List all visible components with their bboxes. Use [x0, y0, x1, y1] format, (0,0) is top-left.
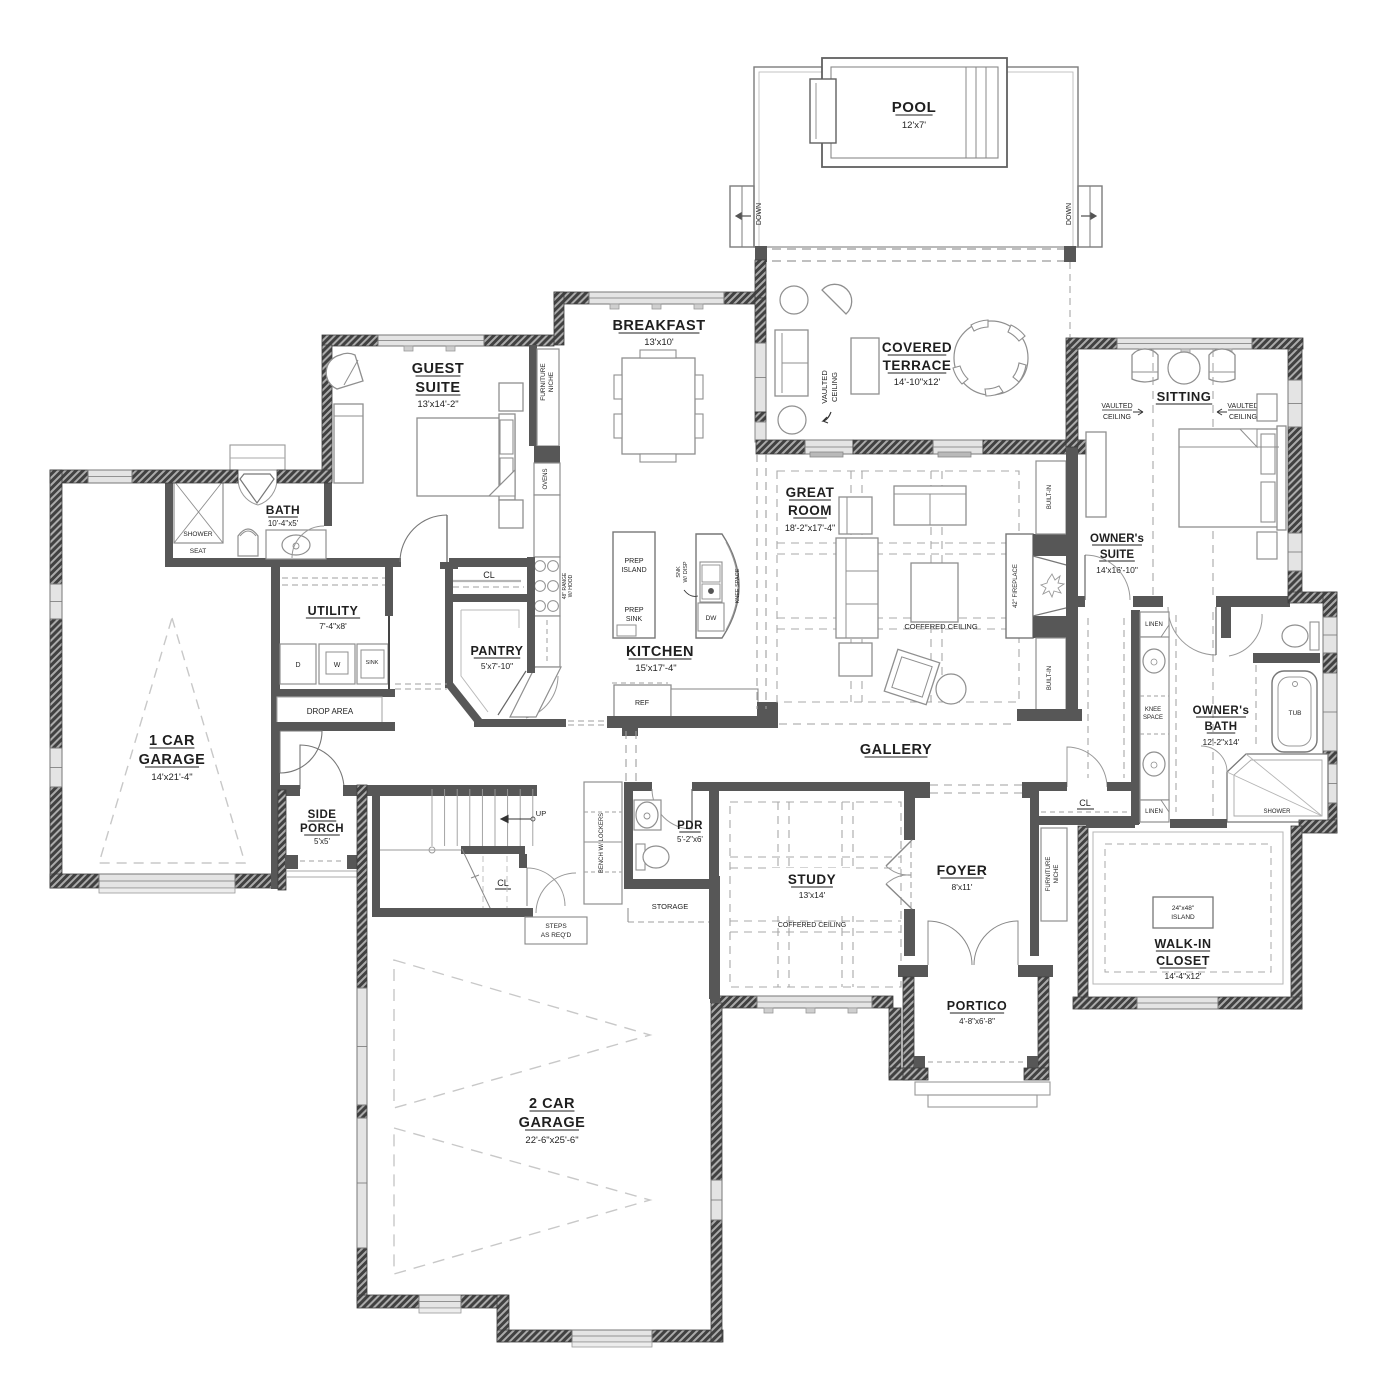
svg-text:NICHE: NICHE — [548, 371, 555, 392]
svg-text:SHOWER: SHOWER — [1264, 809, 1292, 815]
svg-text:BREAKFAST: BREAKFAST — [612, 318, 705, 334]
svg-text:SPACE: SPACE — [1143, 715, 1163, 721]
svg-text:ROOM: ROOM — [788, 503, 832, 518]
svg-text:FOYER: FOYER — [937, 862, 988, 878]
svg-text:PREP: PREP — [624, 607, 643, 614]
svg-text:14'-10"x12': 14'-10"x12' — [894, 377, 941, 388]
svg-text:CL: CL — [483, 570, 495, 580]
svg-text:14'-4"x12': 14'-4"x12' — [1165, 971, 1202, 981]
svg-text:KITCHEN: KITCHEN — [626, 644, 694, 660]
svg-text:ISLAND: ISLAND — [1171, 914, 1195, 921]
svg-text:8'x11': 8'x11' — [951, 882, 972, 892]
svg-text:SINK: SINK — [366, 660, 379, 666]
svg-text:VAULTED: VAULTED — [1227, 403, 1258, 410]
svg-text:PDR: PDR — [677, 820, 703, 832]
svg-text:BATH: BATH — [266, 503, 300, 517]
svg-text:W/ DISP: W/ DISP — [683, 561, 689, 582]
svg-text:NICHE: NICHE — [1054, 865, 1060, 884]
svg-text:KNEE: KNEE — [1145, 707, 1161, 713]
svg-text:STORAGE: STORAGE — [652, 902, 689, 911]
svg-text:W: W — [334, 662, 341, 669]
svg-text:VAULTED: VAULTED — [1101, 403, 1132, 410]
svg-text:42" FIREPLACE: 42" FIREPLACE — [1013, 564, 1019, 608]
svg-text:STEPS: STEPS — [545, 923, 567, 930]
svg-text:DOWN: DOWN — [1066, 203, 1073, 225]
svg-text:LINEN: LINEN — [1145, 809, 1163, 815]
svg-text:GARAGE: GARAGE — [139, 752, 206, 768]
svg-text:OWNER's: OWNER's — [1090, 533, 1144, 545]
svg-text:TUB: TUB — [1289, 710, 1302, 717]
svg-text:4'-8"x6'-8": 4'-8"x6'-8" — [959, 1017, 995, 1026]
svg-text:STUDY: STUDY — [788, 872, 836, 887]
svg-text:14'x21'-4": 14'x21'-4" — [151, 772, 192, 783]
svg-text:CEILING: CEILING — [1229, 414, 1257, 421]
svg-text:SINK: SINK — [626, 616, 643, 623]
svg-text:SHOWER: SHOWER — [183, 531, 213, 538]
svg-text:COFFERED CEILING: COFFERED CEILING — [778, 922, 846, 929]
svg-text:PREP: PREP — [624, 558, 643, 565]
svg-text:2 CAR: 2 CAR — [529, 1096, 575, 1112]
svg-text:UP: UP — [536, 809, 546, 818]
svg-text:14'x16'-10": 14'x16'-10" — [1096, 565, 1138, 575]
svg-text:ISLAND: ISLAND — [621, 567, 646, 574]
svg-text:WALK-IN: WALK-IN — [1155, 937, 1212, 951]
svg-text:GARAGE: GARAGE — [519, 1115, 586, 1131]
svg-text:DW: DW — [706, 615, 718, 622]
svg-text:OVENS: OVENS — [543, 468, 549, 489]
svg-text:SITTING: SITTING — [1157, 389, 1212, 404]
svg-text:CL: CL — [1079, 798, 1091, 808]
svg-text:5'-2"x6': 5'-2"x6' — [677, 835, 703, 844]
svg-text:10'-4"x5': 10'-4"x5' — [268, 519, 299, 528]
svg-text:7'-4"x8': 7'-4"x8' — [319, 621, 347, 631]
svg-text:GUEST: GUEST — [412, 361, 464, 377]
svg-text:COFFERED CEILING: COFFERED CEILING — [904, 622, 978, 631]
svg-text:CEILING: CEILING — [830, 372, 839, 402]
svg-text:W/ HOOD: W/ HOOD — [568, 574, 574, 597]
svg-text:SNK: SNK — [676, 566, 682, 578]
svg-text:12'x7': 12'x7' — [902, 120, 926, 131]
svg-text:22'-6"x25'-6": 22'-6"x25'-6" — [525, 1135, 578, 1146]
svg-text:CEILING: CEILING — [1103, 414, 1131, 421]
svg-text:5'x7'-10": 5'x7'-10" — [481, 661, 513, 671]
svg-text:PORTICO: PORTICO — [947, 999, 1007, 1013]
svg-text:DOWN: DOWN — [756, 203, 763, 225]
svg-text:13'x14': 13'x14' — [799, 890, 826, 900]
svg-text:15'x17'-4": 15'x17'-4" — [635, 663, 676, 674]
svg-text:TERRACE: TERRACE — [883, 358, 952, 373]
svg-text:BUILT-IN: BUILT-IN — [1047, 666, 1053, 690]
svg-text:AS REQ'D: AS REQ'D — [541, 932, 572, 939]
svg-text:FURNITURE: FURNITURE — [1046, 857, 1052, 892]
svg-text:D: D — [295, 662, 300, 669]
svg-text:PANTRY: PANTRY — [471, 644, 524, 658]
svg-text:VAULTED: VAULTED — [820, 370, 829, 404]
svg-text:13'x10': 13'x10' — [644, 337, 674, 348]
svg-text:24"x48": 24"x48" — [1172, 905, 1195, 912]
svg-text:1 CAR: 1 CAR — [149, 733, 195, 749]
svg-text:OWNER's: OWNER's — [1193, 705, 1250, 717]
svg-text:COVERED: COVERED — [882, 340, 952, 355]
svg-text:UTILITY: UTILITY — [308, 604, 359, 618]
svg-text:18'-2"x17'-4": 18'-2"x17'-4" — [785, 523, 835, 533]
svg-text:POOL: POOL — [892, 99, 937, 116]
svg-text:5'x5': 5'x5' — [314, 837, 330, 846]
svg-text:CLOSET: CLOSET — [1156, 954, 1210, 968]
svg-text:13'x14'-2": 13'x14'-2" — [417, 399, 458, 410]
svg-text:GREAT: GREAT — [786, 485, 835, 500]
svg-text:SIDE: SIDE — [308, 809, 337, 821]
svg-text:BUILT-IN: BUILT-IN — [1047, 485, 1053, 509]
svg-text:GALLERY: GALLERY — [860, 742, 932, 758]
svg-text:PORCH: PORCH — [300, 823, 344, 835]
svg-text:BENCH W/ LOCKERS: BENCH W/ LOCKERS — [599, 813, 605, 873]
svg-text:DROP AREA: DROP AREA — [307, 707, 354, 716]
svg-text:SEAT: SEAT — [190, 548, 207, 555]
svg-text:12'-2"x14': 12'-2"x14' — [1203, 737, 1240, 747]
svg-text:KNEE SPACE: KNEE SPACE — [735, 568, 741, 603]
svg-text:FURNITURE: FURNITURE — [540, 363, 547, 401]
svg-text:SUITE: SUITE — [415, 380, 460, 396]
svg-text:REF: REF — [635, 700, 649, 707]
svg-text:BATH: BATH — [1204, 721, 1237, 733]
svg-text:LINEN: LINEN — [1145, 622, 1163, 628]
